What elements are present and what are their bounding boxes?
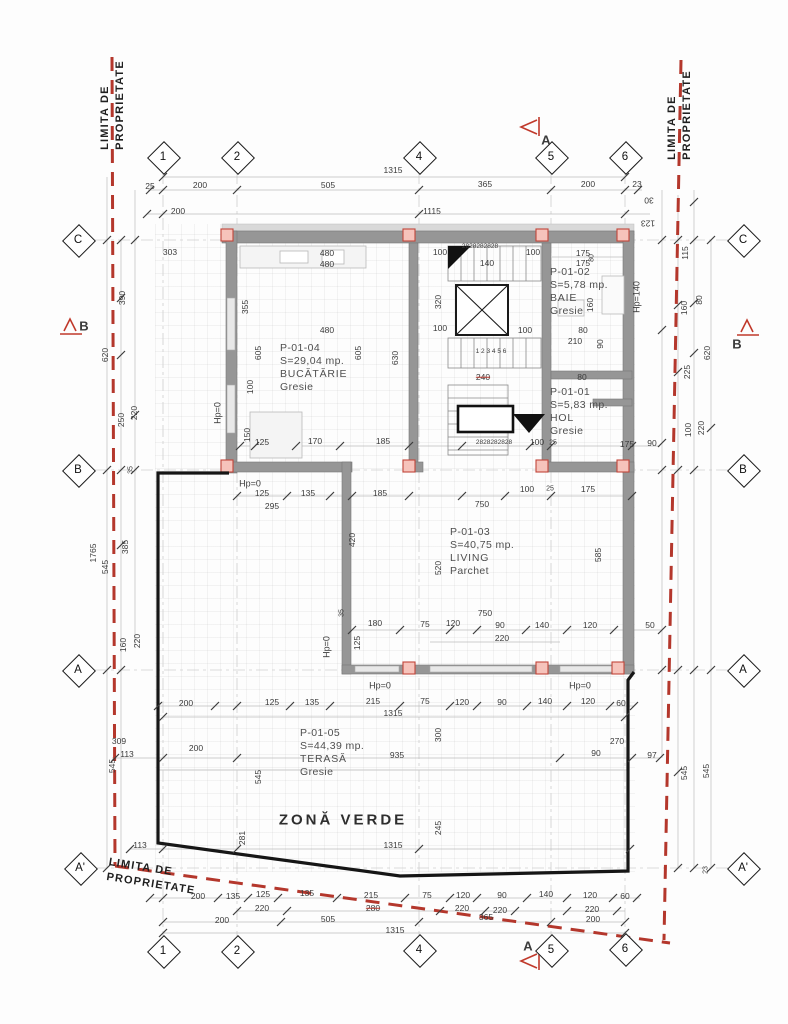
- floor-plan-canvas: 2520050536520023131520011153012330339062…: [0, 0, 788, 1024]
- dimension-label: 90: [497, 891, 506, 900]
- dimension-label: 140: [535, 621, 549, 630]
- dimension-label: 480: [320, 260, 334, 269]
- room-name: HOL: [550, 412, 608, 425]
- grid-bubble-label: 1: [145, 933, 181, 969]
- grid-bubble-A-left: A: [60, 652, 96, 688]
- dimension-label: 80: [695, 295, 704, 304]
- dimension-label: 135: [226, 892, 240, 901]
- dimension-label: 220: [255, 904, 269, 913]
- grid-bubble-label: 2: [219, 933, 255, 969]
- dimension-label: 750: [478, 609, 492, 618]
- dimension-label: 220: [130, 406, 139, 420]
- grid-bubble-label: 4: [401, 932, 437, 968]
- grid-bubble-1-top: 1: [145, 139, 181, 175]
- dimension-label: 75: [420, 620, 429, 629]
- dimension-label: 100: [526, 248, 540, 257]
- dimension-label: 100: [518, 326, 532, 335]
- dimension-label: 113: [133, 841, 147, 850]
- grid-bubble-4-bottom: 4: [401, 932, 437, 968]
- dimension-label: 123: [641, 219, 655, 228]
- room-finish: Gresie: [550, 425, 608, 438]
- dimension-label: 135: [301, 489, 315, 498]
- hp-label: Hp=0: [569, 682, 591, 691]
- property-line-label-bottom-left: LIMITA DEPROPRIETATE: [105, 855, 198, 899]
- dimension-label: 170: [308, 437, 322, 446]
- dimension-label: 185: [373, 489, 387, 498]
- dimension-label: 220: [697, 421, 706, 435]
- dimension-label: 200: [586, 915, 600, 924]
- dimension-label: 135: [300, 889, 314, 898]
- dimension-label: 480: [320, 326, 334, 335]
- dimension-label: 125: [265, 698, 279, 707]
- dimension-label: 160: [119, 638, 128, 652]
- dimension-label: 140: [539, 890, 553, 899]
- dimension-label: 215: [364, 891, 378, 900]
- dimension-label: 220: [585, 905, 599, 914]
- grid-bubble-label: B: [60, 452, 96, 488]
- dimension-label: 220: [493, 906, 507, 915]
- grid-bubble-label: A: [725, 652, 761, 688]
- grid-bubble-label: A': [62, 850, 98, 886]
- room-area: S=40,75 mp.: [450, 539, 514, 552]
- dimension-label: 25: [549, 440, 557, 447]
- room-area: S=44,39 mp.: [300, 740, 364, 753]
- grid-bubble-label: 5: [533, 139, 569, 175]
- dimension-label: 200: [215, 916, 229, 925]
- room-label-P-01-02: P-01-02S=5,78 mp.BAIEGresie: [550, 266, 608, 318]
- grid-bubble-label: C: [725, 222, 761, 258]
- dimension-label: 480: [320, 249, 334, 258]
- room-finish: Gresie: [300, 766, 364, 779]
- dimension-label: 520: [434, 561, 443, 575]
- grid-bubble-B-right: B: [725, 452, 761, 488]
- dimension-label: 2828282828: [476, 440, 512, 447]
- dimension-label: 270: [610, 737, 624, 746]
- dimension-label: 1115: [423, 207, 441, 216]
- dimension-label: 100: [433, 248, 447, 257]
- dimension-label: 100: [684, 423, 693, 437]
- section-b-right-letter: B: [732, 338, 741, 351]
- dimension-label: 125: [255, 438, 269, 447]
- room-area: S=5,83 mp.: [550, 399, 608, 412]
- room-label-P-01-04: P-01-04S=29,04 mp.BUCĂTĂRIEGresie: [280, 342, 347, 394]
- dimension-label: 115: [681, 246, 690, 260]
- grid-bubble-6-top: 6: [607, 139, 643, 175]
- dimension-label: 140: [480, 259, 494, 268]
- labels-layer: 2520050536520023131520011153012330339062…: [0, 0, 788, 1024]
- dimension-label: 935: [390, 751, 404, 760]
- grid-bubble-label: A': [725, 850, 761, 886]
- grid-bubble-label: C: [60, 222, 96, 258]
- grid-bubble-2-bottom: 2: [219, 933, 255, 969]
- hp-label: Hp=0: [214, 402, 223, 424]
- dimension-label: 385: [121, 540, 130, 554]
- dimension-label: 605: [254, 346, 263, 360]
- dimension-label: 220: [455, 904, 469, 913]
- room-id: P-01-01: [550, 386, 608, 399]
- dimension-label: 23: [632, 180, 641, 189]
- dimension-label: 1315: [384, 709, 403, 718]
- grid-bubble-C-left: C: [60, 222, 96, 258]
- dimension-label: 200: [581, 180, 595, 189]
- dimension-label: 215: [366, 697, 380, 706]
- dimension-label: 60: [616, 699, 625, 708]
- room-id: P-01-05: [300, 727, 364, 740]
- dimension-label: 125: [353, 636, 362, 650]
- room-finish: Gresie: [550, 305, 608, 318]
- dimension-label: 25: [145, 182, 154, 191]
- room-label-P-01-01: P-01-01S=5,83 mp.HOLGresie: [550, 386, 608, 438]
- dimension-label: 150: [243, 428, 252, 442]
- dimension-label: 585: [594, 548, 603, 562]
- dimension-label: 120: [455, 698, 469, 707]
- dimension-label: 620: [101, 348, 110, 362]
- dimension-label: 545: [254, 770, 263, 784]
- grid-bubble-label: 1: [145, 139, 181, 175]
- dimension-label: 180: [368, 619, 382, 628]
- property-line-label-top-right: LIMITA DEPROPRIETATE: [665, 70, 695, 160]
- section-a-bottom-letter: A: [523, 940, 532, 953]
- dimension-label: 100: [520, 485, 534, 494]
- dimension-label: 60: [620, 892, 629, 901]
- dimension-label: 280: [366, 904, 380, 913]
- grid-bubble-label: 6: [607, 139, 643, 175]
- dimension-label: 120: [446, 619, 460, 628]
- dimension-label: 1765: [89, 544, 98, 563]
- room-area: S=29,04 mp.: [280, 355, 347, 368]
- dimension-label: 200: [193, 181, 207, 190]
- dimension-label: 80: [589, 254, 596, 262]
- dimension-label: 320: [434, 295, 443, 309]
- dimension-label: 1315: [384, 166, 403, 175]
- dimension-label: 240: [476, 373, 490, 382]
- dimension-label: 420: [348, 533, 357, 547]
- dimension-label: 35: [339, 609, 346, 617]
- room-finish: Parchet: [450, 565, 514, 578]
- dimension-label: 125: [256, 890, 270, 899]
- dimension-label: 125: [255, 489, 269, 498]
- dimension-label: 80: [577, 373, 586, 382]
- dimension-label: 120: [456, 891, 470, 900]
- room-name: BAIE: [550, 292, 608, 305]
- dimension-label: 220: [133, 634, 142, 648]
- dimension-label: 505: [321, 181, 335, 190]
- grid-bubble-B-left: B: [60, 452, 96, 488]
- dimension-label: 185: [376, 437, 390, 446]
- property-line-label-top-left: LIMITA DEPROPRIETATE: [98, 60, 128, 150]
- grid-bubble-Ap-right: A': [725, 850, 761, 886]
- dimension-label: 100: [433, 324, 447, 333]
- grid-bubble-1-bottom: 1: [145, 933, 181, 969]
- dimension-label: 605: [354, 346, 363, 360]
- dimension-label: 300: [434, 728, 443, 742]
- dimension-label: 2828282828: [462, 244, 498, 251]
- room-finish: Gresie: [280, 381, 347, 394]
- dimension-label: 630: [391, 351, 400, 365]
- room-name: BUCĂTĂRIE: [280, 368, 347, 381]
- grid-bubble-label: 5: [533, 932, 569, 968]
- dimension-label: 355: [241, 300, 250, 314]
- dimension-label: 1 2 3 4 5 6: [476, 349, 507, 356]
- grid-bubble-5-bottom: 5: [533, 932, 569, 968]
- grid-bubble-label: 2: [219, 139, 255, 175]
- dimension-label: 245: [434, 821, 443, 835]
- dimension-label: 90: [596, 339, 605, 348]
- section-b-left-letter: B: [79, 320, 88, 333]
- property-line-label-text: LIMITA DE: [665, 70, 680, 160]
- grid-bubble-C-right: C: [725, 222, 761, 258]
- property-line-label-text: PROPRIETATE: [113, 60, 128, 150]
- room-id: P-01-02: [550, 266, 608, 279]
- grid-bubble-Ap-left: A': [62, 850, 98, 886]
- dimension-label: 90: [591, 749, 600, 758]
- dimension-label: 140: [538, 697, 552, 706]
- dimension-label: 175: [620, 440, 634, 449]
- room-id: P-01-03: [450, 526, 514, 539]
- hp-label: Hp=0: [323, 636, 332, 658]
- dimension-label: 90: [497, 698, 506, 707]
- dimension-label: 365: [479, 913, 493, 922]
- grid-bubble-2-top: 2: [219, 139, 255, 175]
- dimension-label: 120: [583, 621, 597, 630]
- dimension-label: 545: [101, 560, 110, 574]
- dimension-label: 175: [581, 485, 595, 494]
- dimension-label: 295: [265, 502, 279, 511]
- grid-bubble-label: A: [60, 652, 96, 688]
- property-line-label-text: PROPRIETATE: [680, 70, 695, 160]
- dimension-label: 303: [163, 248, 177, 257]
- grid-bubble-6-bottom: 6: [607, 931, 643, 967]
- grid-bubble-5-top: 5: [533, 139, 569, 175]
- dimension-label: 97: [647, 751, 656, 760]
- dimension-label: 390: [118, 291, 127, 305]
- dimension-label: 545: [702, 764, 711, 778]
- dimension-label: 120: [581, 697, 595, 706]
- green-zone-label: ZONĂ VERDE: [279, 813, 407, 828]
- grid-bubble-label: 4: [401, 139, 437, 175]
- dimension-label: 620: [703, 346, 712, 360]
- dimension-label: 545: [680, 766, 689, 780]
- grid-bubble-A-right: A: [725, 652, 761, 688]
- dimension-label: 545: [108, 759, 117, 773]
- room-name: TERASĂ: [300, 753, 364, 766]
- dimension-label: 225: [683, 365, 692, 379]
- dimension-label: 309: [112, 737, 126, 746]
- grid-bubble-4-top: 4: [401, 139, 437, 175]
- dimension-label: 23: [703, 866, 710, 874]
- dimension-label: 210: [568, 337, 582, 346]
- dimension-label: 505: [321, 915, 335, 924]
- dimension-label: 25: [546, 486, 554, 493]
- grid-bubble-label: B: [725, 452, 761, 488]
- dimension-label: 113: [120, 750, 134, 759]
- dimension-label: 35: [128, 466, 135, 474]
- dimension-label: 100: [530, 438, 544, 447]
- hp-label: Hp=0: [369, 682, 391, 691]
- dimension-label: 281: [238, 831, 247, 845]
- dimension-label: 750: [475, 500, 489, 509]
- dimension-label: 90: [495, 621, 504, 630]
- dimension-label: 1315: [384, 841, 403, 850]
- dimension-label: 200: [189, 744, 203, 753]
- room-name: LIVING: [450, 552, 514, 565]
- dimension-label: 135: [305, 698, 319, 707]
- room-area: S=5,78 mp.: [550, 279, 608, 292]
- property-line-label-text: LIMITA DE: [98, 60, 113, 150]
- dimension-label: 250: [117, 413, 126, 427]
- dimension-label: 80: [578, 326, 587, 335]
- dimension-label: 90: [647, 439, 656, 448]
- room-label-P-01-05: P-01-05S=44,39 mp.TERASĂGresie: [300, 727, 364, 779]
- grid-bubble-label: 6: [607, 931, 643, 967]
- dimension-label: 365: [478, 180, 492, 189]
- dimension-label: 30: [644, 196, 653, 205]
- dimension-label: 50: [645, 621, 654, 630]
- room-id: P-01-04: [280, 342, 347, 355]
- dimension-label: 75: [422, 891, 431, 900]
- dimension-label: 100: [246, 380, 255, 394]
- dimension-label: 75: [420, 697, 429, 706]
- dimension-label: 220: [495, 634, 509, 643]
- room-label-P-01-03: P-01-03S=40,75 mp.LIVINGParchet: [450, 526, 514, 578]
- dimension-label: 120: [583, 891, 597, 900]
- dimension-label: 200: [179, 699, 193, 708]
- hp-label: Hp=140: [633, 281, 642, 313]
- dimension-label: 160: [680, 301, 689, 315]
- dimension-label: 200: [171, 207, 185, 216]
